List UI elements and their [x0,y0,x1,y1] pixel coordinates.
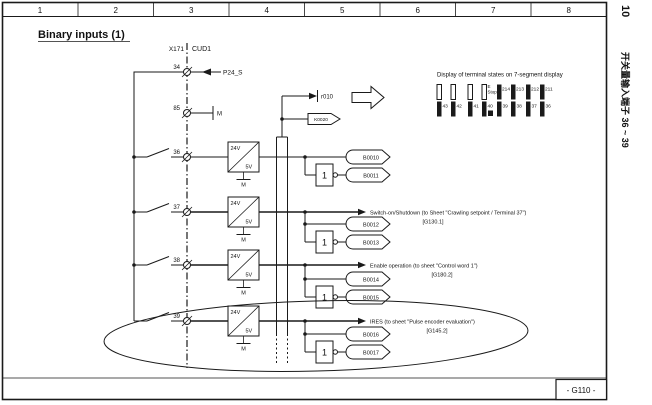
converter-input-label: 24V [231,146,241,152]
function-diagram-page: 1 2 3 4 5 6 7 8 10 开关量输入端子 36 ~ 39 Binar… [0,0,652,405]
estop-label-line1: E [488,84,491,89]
segment-label: 38 [517,104,523,110]
p24-label: P24_S [223,70,243,77]
terminal-34-label: 34 [173,65,180,71]
annotation-ref: [G130.1] [422,220,444,226]
segment-label: 211 [545,87,553,93]
inverter-negation-circle [333,240,337,244]
m-reference-label: M [217,112,222,118]
ruler-cell-4: 4 [264,6,269,15]
board-cud1-label: CUD1 [192,46,211,53]
inverter-label: 1 [322,171,327,181]
sheet-title: Binary inputs (1) [38,29,130,42]
converter-input-label: 24V [231,310,241,316]
inverter-negation-circle [333,350,337,354]
ruler-cell-3: 3 [189,6,194,15]
annotation-text: IRES (to sheet "Pulse encoder evaluation… [370,320,475,326]
terminal-label: 38 [173,258,180,264]
connector-x171-label: X171 [169,46,185,53]
display-caption: Display of terminal states on 7-segment … [437,73,563,79]
converter-output-label: 5V [246,220,253,226]
terminal-label: 36 [173,150,180,156]
segment-label: 40 [488,104,494,110]
estop-label-line2: Stop [488,90,498,95]
binector-label: B0010 [363,156,379,162]
binector-label: B0017 [363,351,379,357]
segment-label: 37 [532,104,538,110]
terminal-85-label: 85 [173,106,180,112]
inverter-label: 1 [322,238,327,248]
converter-output-label: 5V [246,165,253,171]
ruler-cell-8: 8 [566,6,571,15]
connector-k0020-label: K0020 [314,117,328,123]
annotation-ref: [G180.2] [431,273,453,279]
binector-label: B0011 [363,174,379,180]
ruler-cell-1: 1 [38,6,43,15]
ruler-cell-6: 6 [415,6,420,15]
ground-label: M [241,291,246,297]
segment-label: 212 [531,87,539,93]
converter-input-label: 24V [231,201,241,207]
sheet-reference: - G110 - [556,380,607,400]
inverter-negation-circle [333,295,337,299]
binector-label: B0016 [363,333,379,339]
ruler-cell-5: 5 [340,6,345,15]
side-caption: 开关量输入端子 36 ~ 39 [620,52,631,148]
annotation-ref: [G145.2] [426,329,448,335]
ruler-cell-7: 7 [491,6,496,15]
annotation-text: Enable operation (to sheet "Control word… [370,264,478,270]
binector-label: B0014 [363,278,379,284]
ground-label: M [241,183,246,189]
page-number: 10 [619,5,631,17]
display-dot [488,111,493,117]
converter-output-label: 5V [246,329,253,335]
parameter-r010-label: r010 [321,95,334,101]
page-title: Binary inputs (1) [38,29,125,41]
sheet-ref-label: - G110 - [567,386,596,395]
segment-label: 42 [457,104,463,110]
segment-label: 39 [503,104,509,110]
ground-label: M [241,347,246,353]
converter-input-label: 24V [231,254,241,260]
inverter-negation-circle [333,173,337,177]
binector-label: B0012 [363,223,379,229]
ground-label: M [241,238,246,244]
side-margin: 10 开关量输入端子 36 ~ 39 [619,5,631,148]
inverter-label: 1 [322,348,327,358]
converter-output-label: 5V [246,273,253,279]
segment-label: 41 [474,104,480,110]
annotation-text: Switch-on/Shutdown (to Sheet "Crawling s… [370,211,527,217]
terminal-label: 37 [173,205,180,211]
segment-label: 36 [546,104,552,110]
terminal-label: 39 [173,314,180,320]
binector-label: B0013 [363,241,379,247]
segment-label: 213 [516,87,524,93]
ruler-cell-2: 2 [113,6,118,15]
segment-label: 43 [443,104,449,110]
segment-label: 214 [502,87,510,93]
